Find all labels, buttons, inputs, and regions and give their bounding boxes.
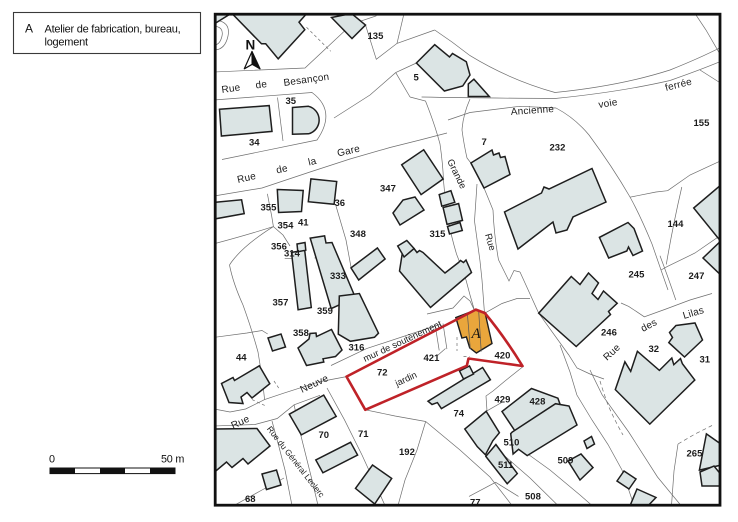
svg-text:0: 0 <box>49 454 55 466</box>
svg-text:421: 421 <box>424 353 441 364</box>
svg-text:155: 155 <box>694 118 711 129</box>
svg-text:511: 511 <box>498 460 514 471</box>
svg-text:de: de <box>255 79 268 92</box>
svg-text:41: 41 <box>298 218 309 229</box>
svg-text:428: 428 <box>530 397 546 408</box>
svg-text:429: 429 <box>495 395 511 406</box>
svg-text:34: 34 <box>249 138 260 149</box>
svg-text:72: 72 <box>377 368 388 379</box>
svg-text:7: 7 <box>482 137 487 148</box>
svg-text:144: 144 <box>668 219 685 230</box>
svg-text:314: 314 <box>284 249 301 260</box>
svg-text:A: A <box>471 326 482 342</box>
svg-text:246: 246 <box>601 328 617 339</box>
svg-text:31: 31 <box>700 355 711 366</box>
svg-text:50 m: 50 m <box>161 454 184 466</box>
svg-text:A: A <box>25 22 33 36</box>
svg-text:247: 247 <box>689 271 705 282</box>
svg-text:245: 245 <box>629 270 646 281</box>
svg-text:357: 357 <box>273 298 289 309</box>
svg-text:359: 359 <box>317 306 333 317</box>
svg-text:232: 232 <box>550 143 566 154</box>
svg-text:74: 74 <box>454 409 465 420</box>
svg-text:35: 35 <box>286 96 297 107</box>
svg-text:358: 358 <box>293 328 309 339</box>
svg-text:5: 5 <box>414 73 420 84</box>
svg-text:348: 348 <box>350 229 366 240</box>
svg-text:316: 316 <box>349 343 365 354</box>
svg-text:N: N <box>246 38 256 53</box>
svg-text:70: 70 <box>319 430 330 441</box>
svg-text:71: 71 <box>358 429 369 440</box>
svg-text:354: 354 <box>278 221 295 232</box>
svg-text:315: 315 <box>430 229 447 240</box>
svg-text:68: 68 <box>245 494 256 505</box>
svg-text:Atelier de fabrication, burea: Atelier de fabrication, bureau, <box>45 24 181 36</box>
svg-text:265: 265 <box>687 449 704 460</box>
svg-text:355: 355 <box>261 203 278 214</box>
svg-text:420: 420 <box>495 351 511 362</box>
svg-text:44: 44 <box>236 353 247 364</box>
svg-text:510: 510 <box>504 438 520 449</box>
svg-text:135: 135 <box>368 31 385 42</box>
svg-text:508: 508 <box>525 492 541 503</box>
svg-text:333: 333 <box>330 271 346 282</box>
svg-text:509: 509 <box>558 456 574 467</box>
svg-text:32: 32 <box>649 344 660 355</box>
svg-text:192: 192 <box>399 447 415 458</box>
svg-text:logement: logement <box>45 37 88 49</box>
svg-text:36: 36 <box>335 198 346 209</box>
svg-text:347: 347 <box>380 184 396 195</box>
